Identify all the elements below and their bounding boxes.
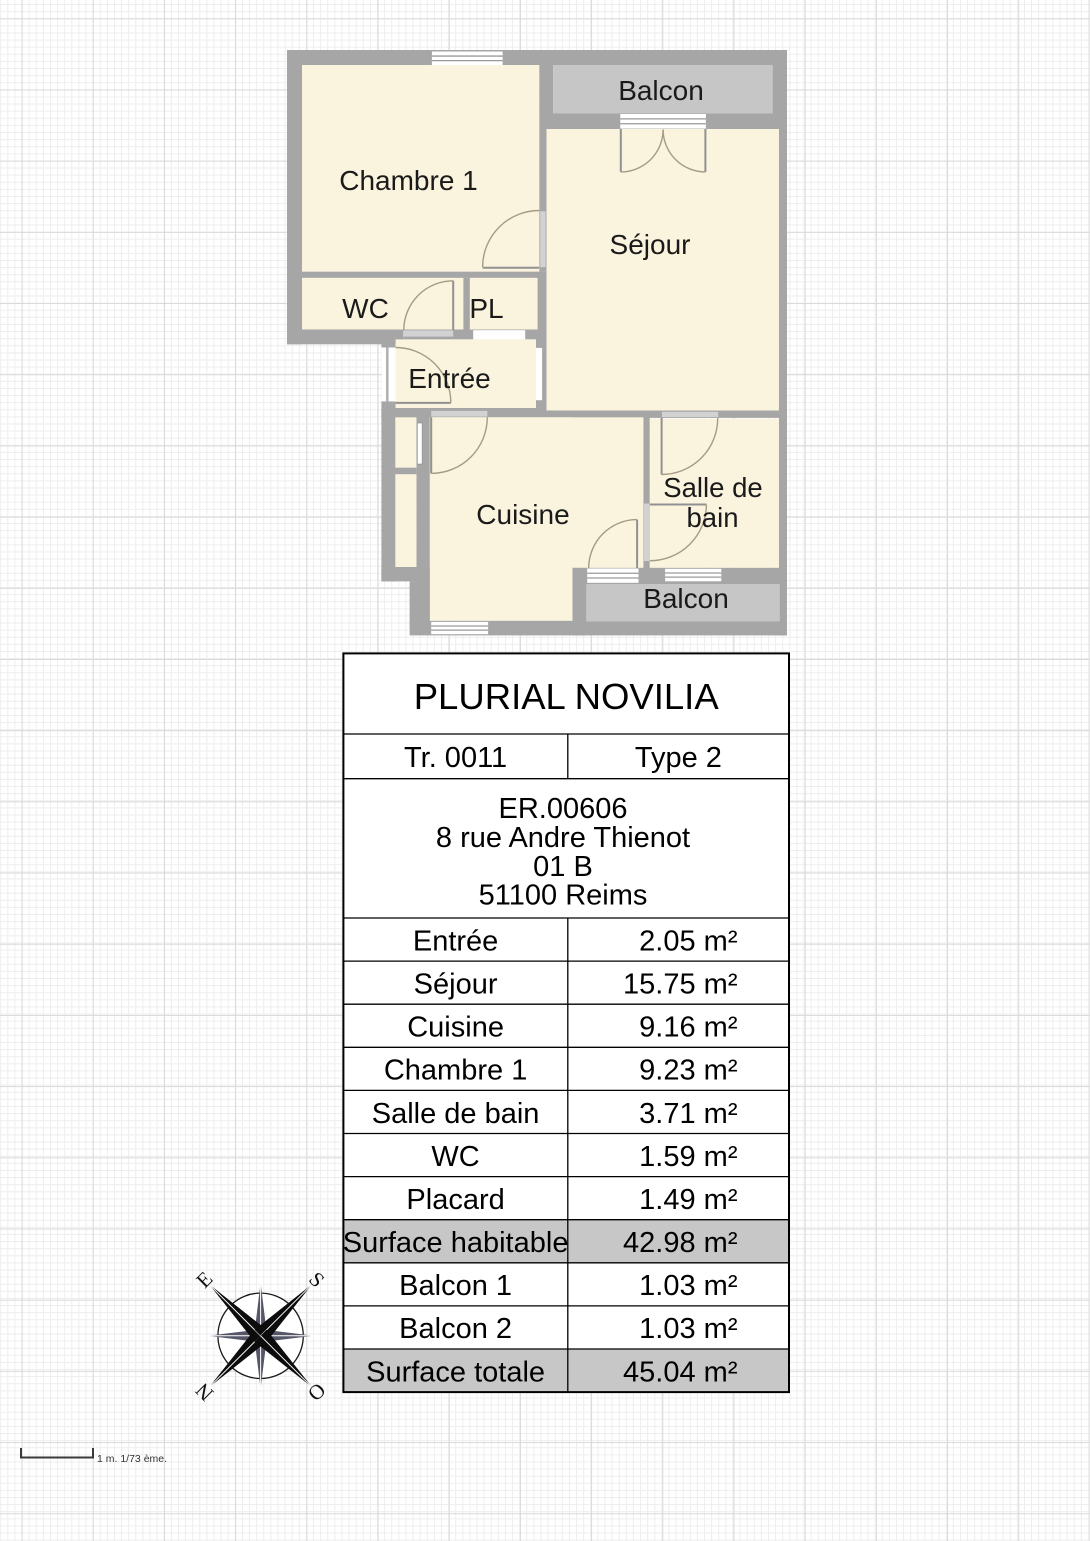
svg-text:Type 2: Type 2 [635, 742, 722, 774]
svg-text:8 rue Andre Thienot: 8 rue Andre Thienot [436, 822, 690, 854]
svg-text:Cuisine: Cuisine [407, 1012, 504, 1044]
svg-text:Balcon 1: Balcon 1 [399, 1270, 512, 1302]
svg-text:WC: WC [342, 293, 389, 324]
svg-text:3.71 m²: 3.71 m² [639, 1098, 738, 1130]
svg-text:Chambre 1: Chambre 1 [339, 165, 478, 196]
svg-text:Séjour: Séjour [414, 968, 498, 1000]
svg-text:9.23 m²: 9.23 m² [639, 1055, 738, 1087]
svg-text:1.03 m²: 1.03 m² [639, 1270, 738, 1302]
svg-text:Salle de bain: Salle de bain [372, 1098, 540, 1130]
svg-text:Balcon: Balcon [618, 75, 704, 106]
svg-text:WC: WC [431, 1141, 479, 1173]
svg-text:1 m. 1/73 ème.: 1 m. 1/73 ème. [97, 1453, 167, 1465]
svg-text:1.49 m²: 1.49 m² [639, 1184, 738, 1216]
svg-text:51100 Reims: 51100 Reims [479, 880, 648, 912]
svg-text:45.04 m²: 45.04 m² [623, 1356, 738, 1388]
svg-text:Entrée: Entrée [408, 363, 491, 394]
svg-text:Tr. 0011: Tr. 0011 [404, 742, 507, 774]
svg-text:bain: bain [687, 502, 739, 533]
svg-text:1.59 m²: 1.59 m² [639, 1141, 738, 1173]
svg-text:Balcon 2: Balcon 2 [399, 1313, 512, 1345]
svg-text:Placard: Placard [406, 1184, 504, 1216]
svg-text:42.98 m²: 42.98 m² [623, 1227, 738, 1259]
svg-text:Balcon: Balcon [643, 583, 729, 614]
svg-text:Chambre 1: Chambre 1 [384, 1055, 527, 1087]
svg-text:Surface totale: Surface totale [366, 1356, 545, 1388]
svg-text:Salle de: Salle de [663, 472, 762, 503]
svg-text:9.16 m²: 9.16 m² [639, 1012, 738, 1044]
svg-text:01 B: 01 B [533, 851, 593, 883]
svg-text:1.03 m²: 1.03 m² [639, 1313, 738, 1345]
svg-text:ER.00606: ER.00606 [499, 793, 628, 825]
svg-text:Surface habitable: Surface habitable [343, 1227, 569, 1259]
svg-text:PL: PL [469, 293, 503, 324]
svg-text:Séjour: Séjour [610, 229, 691, 260]
svg-text:2.05 m²: 2.05 m² [639, 925, 738, 957]
svg-text:15.75 m²: 15.75 m² [623, 968, 738, 1000]
svg-text:Cuisine: Cuisine [476, 499, 569, 530]
svg-text:Entrée: Entrée [413, 925, 498, 957]
svg-text:PLURIAL NOVILIA: PLURIAL NOVILIA [414, 676, 720, 717]
